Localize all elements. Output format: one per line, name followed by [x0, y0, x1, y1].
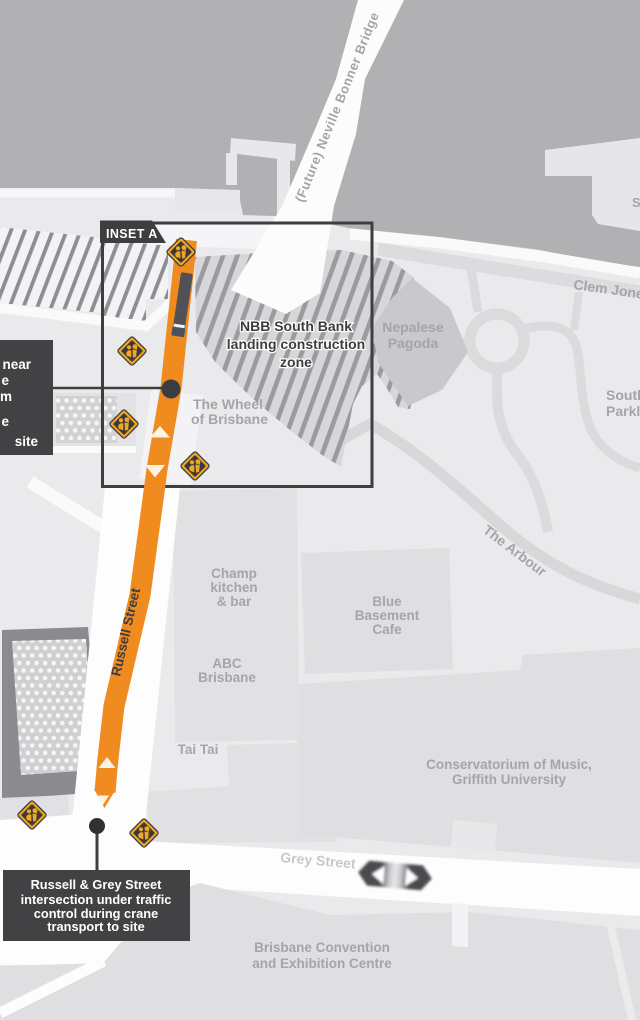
svg-text:NepalesePagoda: NepalesePagoda — [382, 319, 444, 351]
svg-text:Champkitchen& bar: Champkitchen& bar — [210, 566, 257, 609]
svg-text:INSET A: INSET A — [106, 227, 158, 241]
svg-text:South BankParklands: South BankParklands — [606, 387, 640, 419]
svg-text:Tai Tai: Tai Tai — [178, 742, 219, 757]
svg-text:St: St — [632, 195, 640, 210]
svg-text:The Wheelof Brisbane: The Wheelof Brisbane — [191, 396, 268, 427]
svg-text:Brisbane Conventionand Exhibit: Brisbane Conventionand Exhibition Centre — [252, 940, 392, 971]
